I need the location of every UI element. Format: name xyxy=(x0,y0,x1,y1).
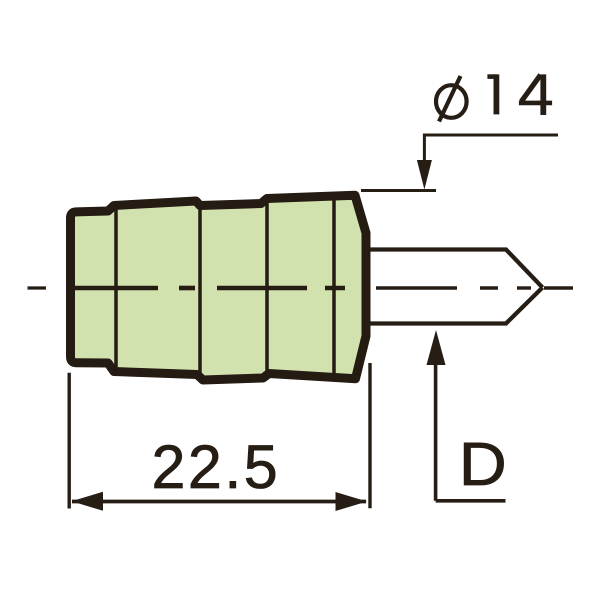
svg-text:D: D xyxy=(459,430,507,498)
svg-text:22.5: 22.5 xyxy=(152,433,281,501)
